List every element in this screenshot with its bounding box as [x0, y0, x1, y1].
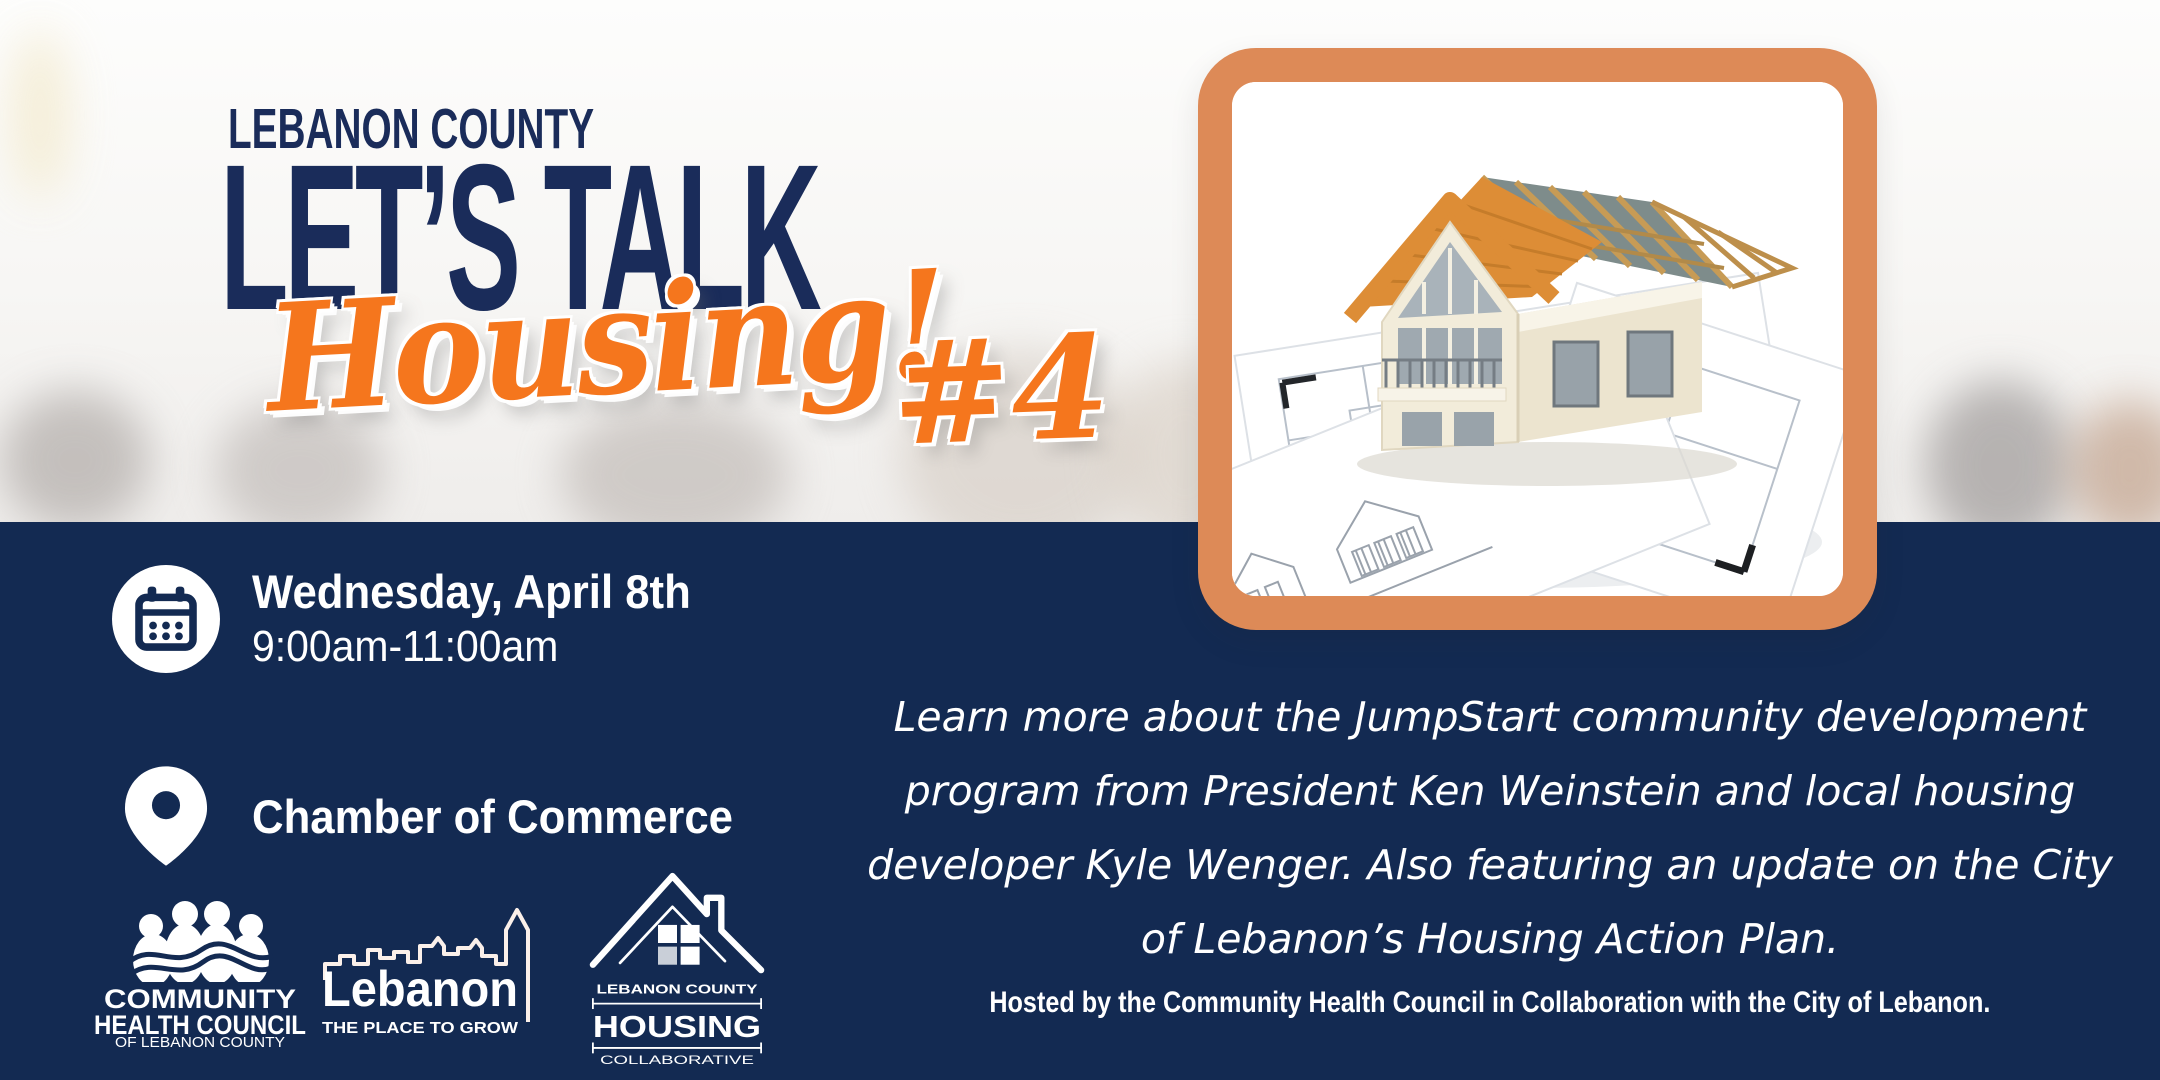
housing-line3: COLLABORATIVE: [600, 1054, 754, 1066]
location-row: Chamber of Commerce: [112, 762, 769, 870]
lebanon-tagline: THE PLACE TO GROW: [322, 1020, 519, 1037]
hosted-by-text: Hosted by the Community Health Council i…: [989, 986, 1990, 1020]
logo-housing-collaborative: LEBANON COUNTY HOUSING COLLABORATIVE: [582, 858, 772, 1066]
calendar-icon: [112, 565, 220, 673]
chc-line3: OF LEBANON COUNTY: [115, 1034, 285, 1048]
lebanon-name: Lebanon: [322, 961, 518, 1017]
event-time: 9:00am-11:00am: [252, 619, 691, 674]
location-pin-icon: [112, 762, 220, 870]
photo-blur-blob: [2070, 400, 2160, 522]
house-blueprint-photo: [1198, 48, 1877, 630]
event-location: Chamber of Commerce: [252, 789, 733, 844]
session-number: #4: [889, 304, 1112, 477]
logo-community-health-council: COMMUNITY HEALTH COUNCIL OF LEBANON COUN…: [93, 898, 308, 1048]
flyer-canvas: LEBANON COUNTY LET’S TALK Housing! #4: [0, 0, 2160, 1080]
event-date: Wednesday, April 8th: [252, 564, 691, 619]
photo-blur-blob: [10, 30, 70, 200]
house-blueprint-illustration: [1232, 82, 1843, 596]
date-time-text: Wednesday, April 8th 9:00am-11:00am: [252, 564, 691, 674]
date-time-row: Wednesday, April 8th 9:00am-11:00am: [112, 564, 724, 674]
photo-blur-blob: [1925, 380, 2075, 522]
housing-line2: HOUSING: [593, 1009, 761, 1044]
hosted-by-line: Hosted by the Community Health Council i…: [845, 986, 2135, 1020]
logo-city-of-lebanon: Lebanon THE PLACE TO GROW: [320, 900, 568, 1050]
photo-blur-blob: [0, 390, 150, 522]
event-description: Learn more about the JumpStart community…: [845, 680, 2135, 976]
housing-line1: LEBANON COUNTY: [597, 983, 759, 997]
title-script-housing: Housing!: [262, 236, 949, 445]
location-text: Chamber of Commerce: [252, 789, 733, 844]
